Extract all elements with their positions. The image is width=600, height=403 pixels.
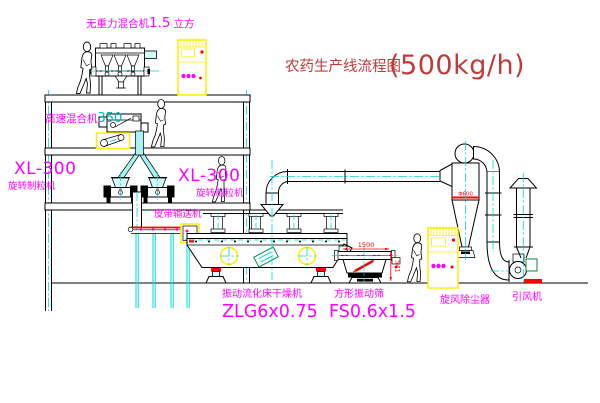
granulator-left-model: XL-300 <box>14 159 76 179</box>
conveyor-legs <box>136 233 189 308</box>
mixer-outlet-stub <box>145 51 157 59</box>
downpipe-and-fan <box>485 160 542 284</box>
dryer-foot-left <box>206 268 226 283</box>
fluid-bed-dryer <box>187 210 352 283</box>
roof-slab <box>45 95 250 102</box>
induced-draft-fan <box>510 254 543 283</box>
second-floor-slab <box>45 148 250 155</box>
control-cabinet-1 <box>178 39 206 96</box>
screen-name: 方形振动筛 <box>334 287 384 300</box>
vibrating-screen: 1500 541 <box>332 241 402 283</box>
granulator-right-name: 旋转制粒机 <box>196 187 244 199</box>
first-floor-slab <box>45 203 250 210</box>
cyclone-label: 旋风除尘器 <box>440 293 490 306</box>
dim-541: 541 <box>394 260 402 272</box>
control-cabinet-2 <box>428 227 458 289</box>
gravity-free-mixer <box>86 44 162 96</box>
granulator-right <box>141 172 175 203</box>
person-roof <box>76 42 91 93</box>
person-ground <box>407 234 421 282</box>
granulator-right-model: XL-300 <box>178 166 240 186</box>
high-speed-mixer-label: 高速混合机350 <box>45 111 122 126</box>
knob <box>181 74 185 78</box>
discharge-chute <box>133 192 142 230</box>
indicator-light <box>452 238 455 241</box>
knob <box>431 264 435 268</box>
dryer-foot-right <box>311 268 331 283</box>
person-floor2 <box>151 100 165 147</box>
diagram-canvas: Φ600 1500 <box>0 0 600 403</box>
dryer-name: 振动流化床干燥机 <box>222 287 302 300</box>
diagram-title-capacity: (500kg/h) <box>389 50 525 81</box>
diagram-title: 农药生产线流程图 <box>285 58 401 75</box>
dryer-duct-stubs <box>211 214 338 233</box>
belt-conveyor-label: 皮带输送机 <box>154 208 202 220</box>
knob <box>436 264 440 268</box>
bottom-elbow <box>487 242 509 280</box>
cad-flow-diagram: Φ600 1500 <box>0 0 600 403</box>
cyclone-diameter-dim: Φ600 <box>458 192 473 198</box>
knob <box>191 74 195 78</box>
gravity-mixer-label: 无重力混合机1.5立方 <box>86 15 194 31</box>
dim-1500: 1500 <box>358 241 375 249</box>
indicator-light <box>451 266 454 269</box>
mixer-internal-funnels <box>101 55 139 76</box>
screen-model: FS0.6x1.5 <box>329 302 416 322</box>
fan-label: 引风机 <box>512 290 542 303</box>
dryer-model: ZLG6x0.75 <box>222 302 318 322</box>
indicator-light <box>199 77 202 80</box>
granulator-left-name: 旋转制粒机 <box>8 180 56 192</box>
indicator-light <box>200 50 203 53</box>
knob <box>186 74 190 78</box>
knob <box>441 264 445 268</box>
